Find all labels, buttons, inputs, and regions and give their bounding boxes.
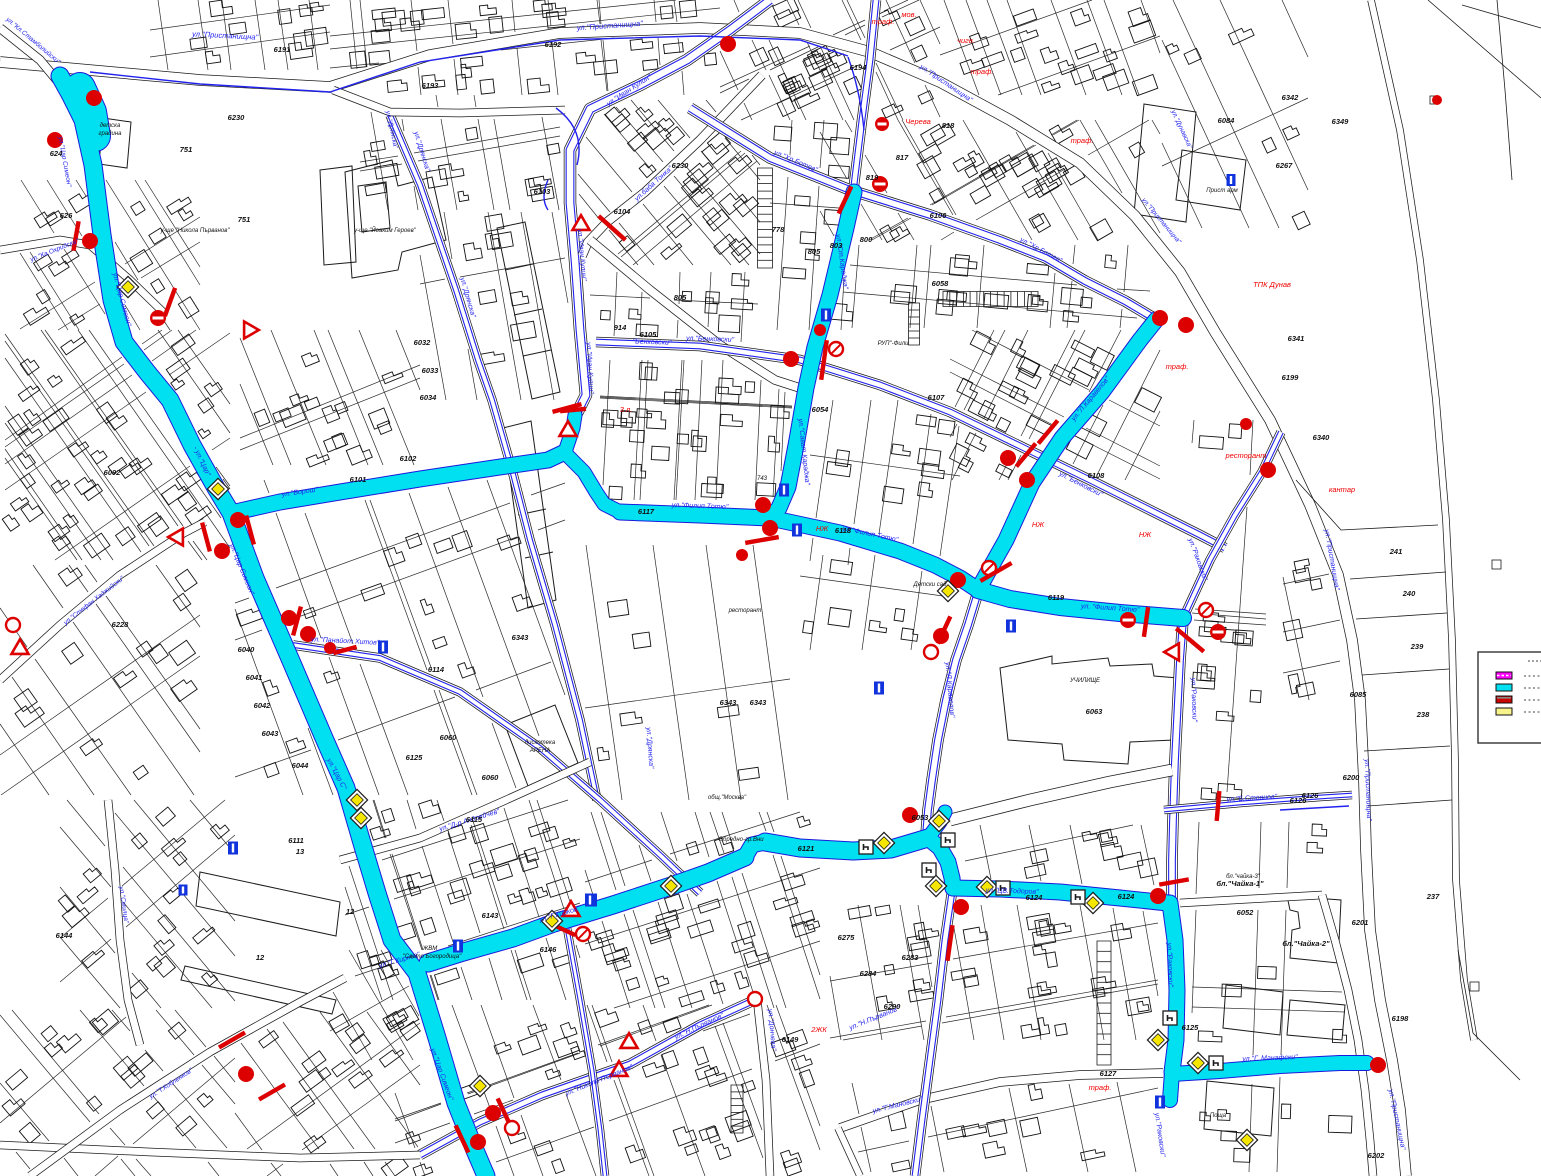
svg-text:6124: 6124	[1026, 893, 1044, 902]
svg-text:6126: 6126	[1290, 796, 1308, 805]
svg-text:6349: 6349	[1332, 117, 1350, 126]
svg-text:914: 914	[614, 323, 627, 332]
svg-text:805: 805	[808, 247, 821, 256]
svg-text:дискотека: дискотека	[525, 740, 556, 746]
svg-text:траф.: траф.	[1089, 1083, 1112, 1092]
svg-text:6343: 6343	[720, 698, 738, 707]
svg-text:6053: 6053	[912, 813, 930, 822]
svg-text:6341: 6341	[1288, 334, 1305, 343]
svg-text:6149: 6149	[782, 1035, 800, 1044]
svg-text:6114: 6114	[428, 665, 445, 674]
svg-text:2ЖК: 2ЖК	[810, 1025, 827, 1034]
svg-text:6102: 6102	[400, 454, 418, 463]
svg-text:6124: 6124	[1118, 892, 1136, 901]
svg-text:6343: 6343	[750, 698, 768, 707]
svg-text:6052: 6052	[1237, 908, 1255, 917]
svg-text:3 л.: 3 л.	[620, 405, 633, 414]
svg-text:6193: 6193	[422, 81, 440, 90]
svg-text:бл."Чайка-2": бл."Чайка-2"	[1282, 939, 1330, 948]
svg-text:6115: 6115	[466, 815, 483, 824]
svg-text:6118: 6118	[835, 526, 852, 535]
svg-text:6042: 6042	[254, 701, 272, 710]
svg-text:6084: 6084	[1218, 116, 1236, 125]
svg-text:778: 778	[772, 225, 785, 234]
svg-text:РУП"-Фили: РУП"-Фили	[878, 341, 910, 347]
svg-text:6283: 6283	[902, 953, 920, 962]
svg-text:мов.: мов.	[901, 10, 916, 19]
svg-text:траф.: траф.	[1166, 362, 1189, 371]
svg-text:6111: 6111	[288, 836, 304, 845]
svg-text:751: 751	[238, 215, 251, 224]
svg-text:6121: 6121	[798, 844, 815, 853]
svg-text:траф.: траф.	[872, 17, 895, 26]
svg-text:6340: 6340	[1313, 433, 1331, 442]
svg-text:6143: 6143	[482, 911, 500, 920]
svg-text:6105: 6105	[640, 330, 658, 339]
svg-text:6119: 6119	[1048, 593, 1065, 602]
svg-text:12: 12	[256, 953, 265, 962]
svg-text:6058: 6058	[932, 279, 950, 288]
svg-text:чигв.: чигв.	[957, 36, 975, 45]
svg-text:Обредно-гр.Вни: Обредно-гр.Вни	[718, 837, 764, 843]
svg-text:общ."Москва": общ."Москва"	[708, 795, 747, 801]
svg-text:6085: 6085	[1350, 690, 1368, 699]
svg-text:818: 818	[942, 121, 955, 130]
svg-text:6117: 6117	[638, 507, 655, 516]
svg-text:6106: 6106	[930, 211, 948, 220]
svg-text:6267: 6267	[1276, 161, 1294, 170]
svg-text:6104: 6104	[614, 207, 632, 216]
svg-text:6342: 6342	[1282, 93, 1300, 102]
svg-text:6199: 6199	[1282, 373, 1300, 382]
svg-text:6290: 6290	[884, 1002, 902, 1011]
svg-text:бл."Чайка-1": бл."Чайка-1"	[1216, 879, 1264, 888]
svg-text:6201: 6201	[1352, 918, 1369, 927]
svg-text:817: 817	[896, 153, 909, 162]
svg-text:НЖ: НЖ	[816, 524, 829, 533]
svg-text:УЧИЛИЩЕ: УЧИЛИЩЕ	[1069, 678, 1101, 684]
svg-text:6230: 6230	[672, 161, 690, 170]
svg-text:624: 624	[50, 149, 63, 158]
svg-text:800: 800	[860, 235, 873, 244]
svg-text:6200: 6200	[1343, 773, 1361, 782]
svg-text:6107: 6107	[928, 393, 946, 402]
svg-text:АРЕНА: АРЕНА	[529, 748, 550, 754]
svg-text:6041: 6041	[246, 673, 263, 682]
svg-text:819: 819	[866, 173, 879, 182]
svg-text:803: 803	[830, 241, 843, 250]
svg-text:ресторант: ресторант	[1224, 451, 1266, 460]
svg-text:6032: 6032	[414, 338, 432, 347]
svg-text:6202: 6202	[1368, 1151, 1386, 1160]
svg-text:6343: 6343	[512, 633, 530, 642]
svg-text:13: 13	[296, 847, 305, 856]
svg-text:240: 240	[1402, 589, 1416, 598]
svg-text:237: 237	[1426, 892, 1440, 901]
svg-text:ТПК Дунав: ТПК Дунав	[1253, 280, 1291, 289]
svg-text:626: 626	[60, 211, 73, 220]
svg-text:6040: 6040	[238, 645, 256, 654]
svg-text:"Бенковски": "Бенковски"	[633, 338, 672, 346]
svg-text:805: 805	[674, 293, 687, 302]
svg-text:6230: 6230	[228, 113, 246, 122]
svg-text:Черева: Черева	[905, 117, 931, 126]
svg-text:6054: 6054	[812, 405, 830, 414]
svg-text:ресторант: ресторант	[728, 608, 762, 614]
svg-text:Поща: Поща	[1210, 1113, 1227, 1119]
svg-text:6043: 6043	[262, 729, 280, 738]
svg-text:6101: 6101	[350, 475, 367, 484]
svg-text:6108: 6108	[1088, 471, 1106, 480]
svg-text:238: 238	[1416, 710, 1430, 719]
svg-text:6125: 6125	[1182, 1023, 1200, 1032]
svg-text:751: 751	[180, 145, 193, 154]
svg-text:6146: 6146	[540, 945, 558, 954]
svg-text:241: 241	[1389, 547, 1403, 556]
svg-text:6144: 6144	[56, 931, 74, 940]
svg-text:6033: 6033	[422, 366, 440, 375]
svg-text:НЖ: НЖ	[1139, 530, 1152, 539]
svg-text:детска: детска	[100, 123, 121, 129]
svg-text:6063: 6063	[1086, 707, 1104, 716]
svg-text:6284: 6284	[860, 969, 878, 978]
svg-text:6060: 6060	[440, 733, 458, 742]
svg-text:6198: 6198	[1392, 1014, 1410, 1023]
svg-text:6191: 6191	[274, 45, 291, 54]
svg-text:6228: 6228	[112, 620, 130, 629]
svg-text:743: 743	[757, 476, 768, 482]
svg-text:"Свето Богородица": "Свето Богородица"	[403, 954, 462, 960]
svg-text:12: 12	[346, 907, 355, 916]
svg-text:траф.: траф.	[971, 67, 994, 76]
svg-text:6060: 6060	[482, 773, 500, 782]
svg-text:у-ще "Йоаким Героев": у-ще "Йоаким Героев"	[353, 226, 417, 234]
svg-text:Прист арм: Прист арм	[1206, 188, 1237, 194]
svg-text:6034: 6034	[420, 393, 438, 402]
svg-text:кантар: кантар	[1329, 485, 1355, 494]
svg-text:6103: 6103	[534, 187, 552, 196]
svg-text:6125: 6125	[406, 753, 424, 762]
svg-text:ЖВМ: ЖВМ	[422, 946, 438, 952]
svg-text:239: 239	[1410, 642, 1424, 651]
svg-text:6127: 6127	[1100, 1069, 1118, 1078]
svg-text:траф.: траф.	[1071, 136, 1094, 145]
svg-text:6044: 6044	[292, 761, 310, 770]
svg-text:бл."чайка-3": бл."чайка-3"	[1226, 873, 1261, 880]
svg-text:6192: 6192	[545, 40, 563, 49]
svg-text:6092: 6092	[104, 468, 122, 477]
svg-text:6194: 6194	[850, 63, 868, 72]
svg-text:НЖ: НЖ	[1032, 520, 1045, 529]
svg-text:Детски сад: Детски сад	[913, 582, 948, 588]
svg-text:6275: 6275	[838, 933, 856, 942]
svg-text:у-ще "Никола Първанов": у-ще "Никола Първанов"	[160, 228, 231, 234]
svg-text:градина: градина	[99, 131, 123, 137]
